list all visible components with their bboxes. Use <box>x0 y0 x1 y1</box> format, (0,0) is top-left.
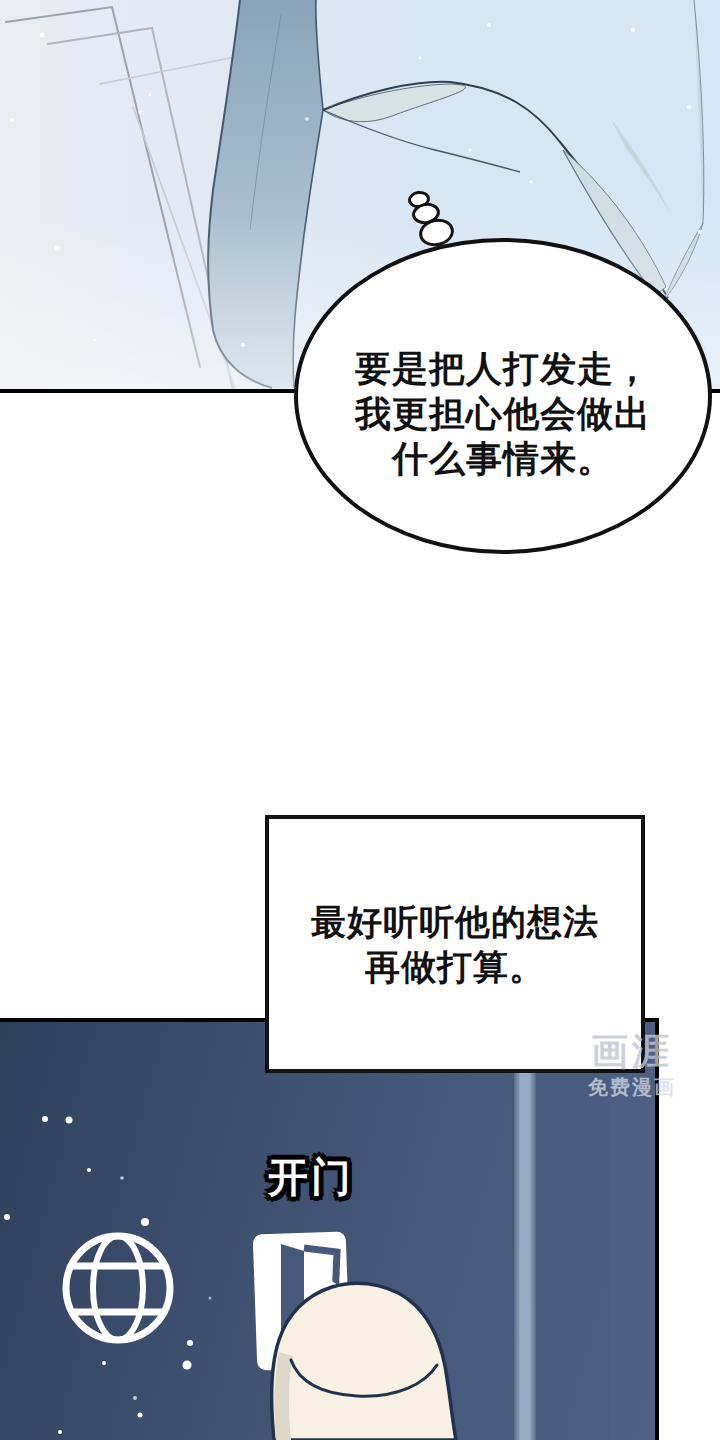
thought-bubble: 要是把人打发走， 我更担心他会做出 什么事情来。 <box>294 238 712 554</box>
sfx-open-door-label: 开门 <box>268 1150 354 1205</box>
finger-illustration <box>272 1283 456 1440</box>
bubble-text-line: 要是把人打发走， <box>355 346 651 391</box>
narration-text-line: 再做打算。 <box>365 944 545 989</box>
comic-page: 要是把人打发走， 我更担心他会做出 什么事情来。 最好听听他的想法 再做打算。 <box>0 0 720 1440</box>
watermark-subtitle: 免费漫画 <box>588 1075 676 1099</box>
wall-light-stripe <box>514 1022 536 1440</box>
watermark-logo: 画涯 <box>588 1032 676 1072</box>
bubble-text-line: 我更担心他会做出 <box>355 391 651 436</box>
bubble-text-line: 什么事情来。 <box>355 436 651 481</box>
globe-icon <box>66 1236 170 1340</box>
night-scene-illustration <box>0 1022 655 1440</box>
narration-text-line: 最好听听他的想法 <box>311 899 599 944</box>
night-panel-scene <box>0 1018 659 1440</box>
watermark: 画涯 免费漫画 <box>588 1032 676 1099</box>
